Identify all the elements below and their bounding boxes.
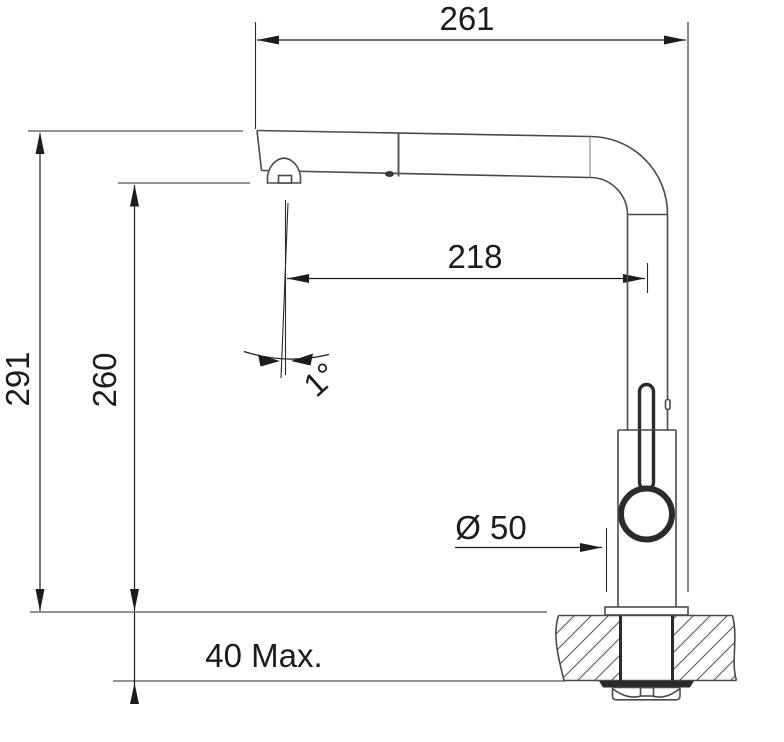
arrowhead-down (36, 589, 45, 611)
dimension-outlet-height-label: 260 (86, 352, 123, 407)
dimension-outlet-height: 260 (86, 183, 250, 611)
arrowhead-left (258, 355, 280, 367)
mounting-nut (613, 688, 681, 700)
handle-pin (666, 400, 671, 410)
handle-stem (640, 385, 654, 490)
handle-ring (621, 489, 672, 540)
countertop-hatch-right (673, 616, 737, 681)
spout-top-edge (257, 131, 590, 137)
dimension-reach-label: 218 (447, 238, 502, 275)
bend-outer-curve (590, 137, 668, 215)
dimension-mounting-thickness-label: 40 Max. (205, 637, 322, 674)
dimension-mounting-thickness: 40 Max. (30, 612, 566, 704)
arrowhead-up (130, 683, 139, 704)
arrowhead-right (664, 36, 686, 45)
mounting-washer (599, 681, 694, 688)
arrowhead-up (36, 132, 45, 154)
arrowhead-up (130, 185, 139, 207)
arrowhead-right (623, 274, 645, 283)
dimension-spout-width-label: 261 (439, 0, 494, 37)
arrowhead-down (130, 589, 139, 611)
countertop-hatch-left (556, 616, 620, 681)
dimension-total-height-label: 291 (0, 351, 36, 406)
base-flange (605, 607, 688, 615)
aerator-outlet (279, 176, 292, 184)
bend-inner-curve (590, 178, 628, 215)
faucet-installation-drawing: 261 291 260 218 1° Ø 50 (0, 0, 784, 742)
dimension-base-diameter: Ø 50 (455, 509, 607, 592)
dimension-base-diameter-label: Ø 50 (455, 509, 527, 546)
tilted-stream-line (281, 203, 288, 378)
dimension-reach: 218 (287, 238, 648, 293)
arrowhead-right (580, 543, 602, 552)
spray-head-clip (385, 171, 394, 177)
arrowhead-left (257, 36, 279, 45)
arrowhead-left (287, 274, 309, 283)
spout-front-edge (257, 131, 262, 171)
dimension-outlet-angle: 1° (244, 200, 344, 404)
countertop-section (556, 616, 737, 700)
spout-bottom-edge (262, 171, 591, 178)
